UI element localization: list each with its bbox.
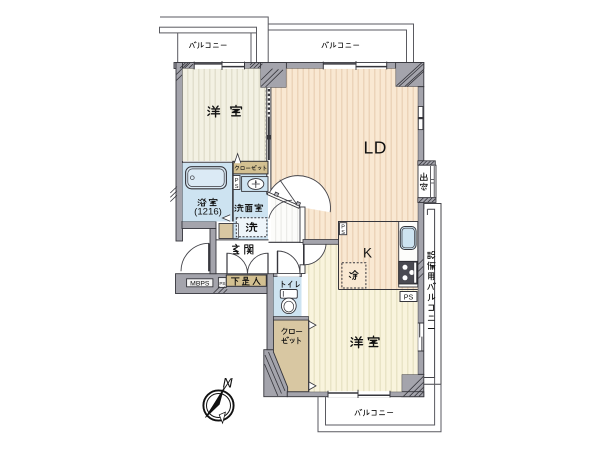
svg-text:MBPS: MBPS	[190, 280, 210, 287]
svg-text:S: S	[235, 184, 239, 190]
svg-text:N: N	[223, 375, 234, 391]
svg-text:PS: PS	[404, 292, 414, 301]
svg-text:K: K	[363, 246, 372, 261]
svg-text:PS: PS	[219, 281, 225, 286]
svg-text:LD: LD	[364, 137, 387, 157]
svg-text:(1216): (1216)	[194, 206, 222, 217]
svg-text:S: S	[341, 230, 345, 236]
svg-text:P: P	[235, 178, 239, 184]
